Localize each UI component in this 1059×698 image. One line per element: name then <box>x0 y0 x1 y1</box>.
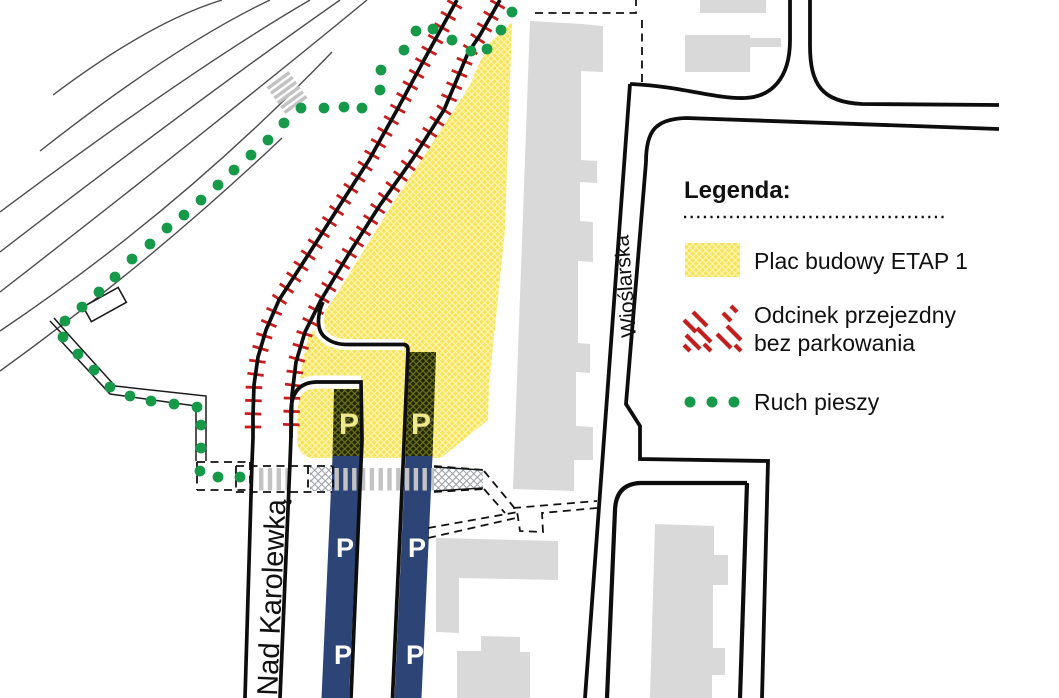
svg-text:P: P <box>334 640 352 670</box>
svg-text:Legenda:: Legenda: <box>684 177 791 204</box>
svg-text:P: P <box>406 640 424 670</box>
svg-text:P: P <box>408 533 426 563</box>
svg-text:Odcinek przejezdny: Odcinek przejezdny <box>754 302 956 328</box>
svg-text:Ruch pieszy: Ruch pieszy <box>754 389 880 415</box>
svg-text:bez parkowania: bez parkowania <box>754 330 915 356</box>
svg-text:Plac budowy ETAP 1: Plac budowy ETAP 1 <box>754 248 968 274</box>
svg-text:P: P <box>336 533 354 563</box>
svg-text:P: P <box>339 408 359 441</box>
svg-text:P: P <box>411 408 431 441</box>
